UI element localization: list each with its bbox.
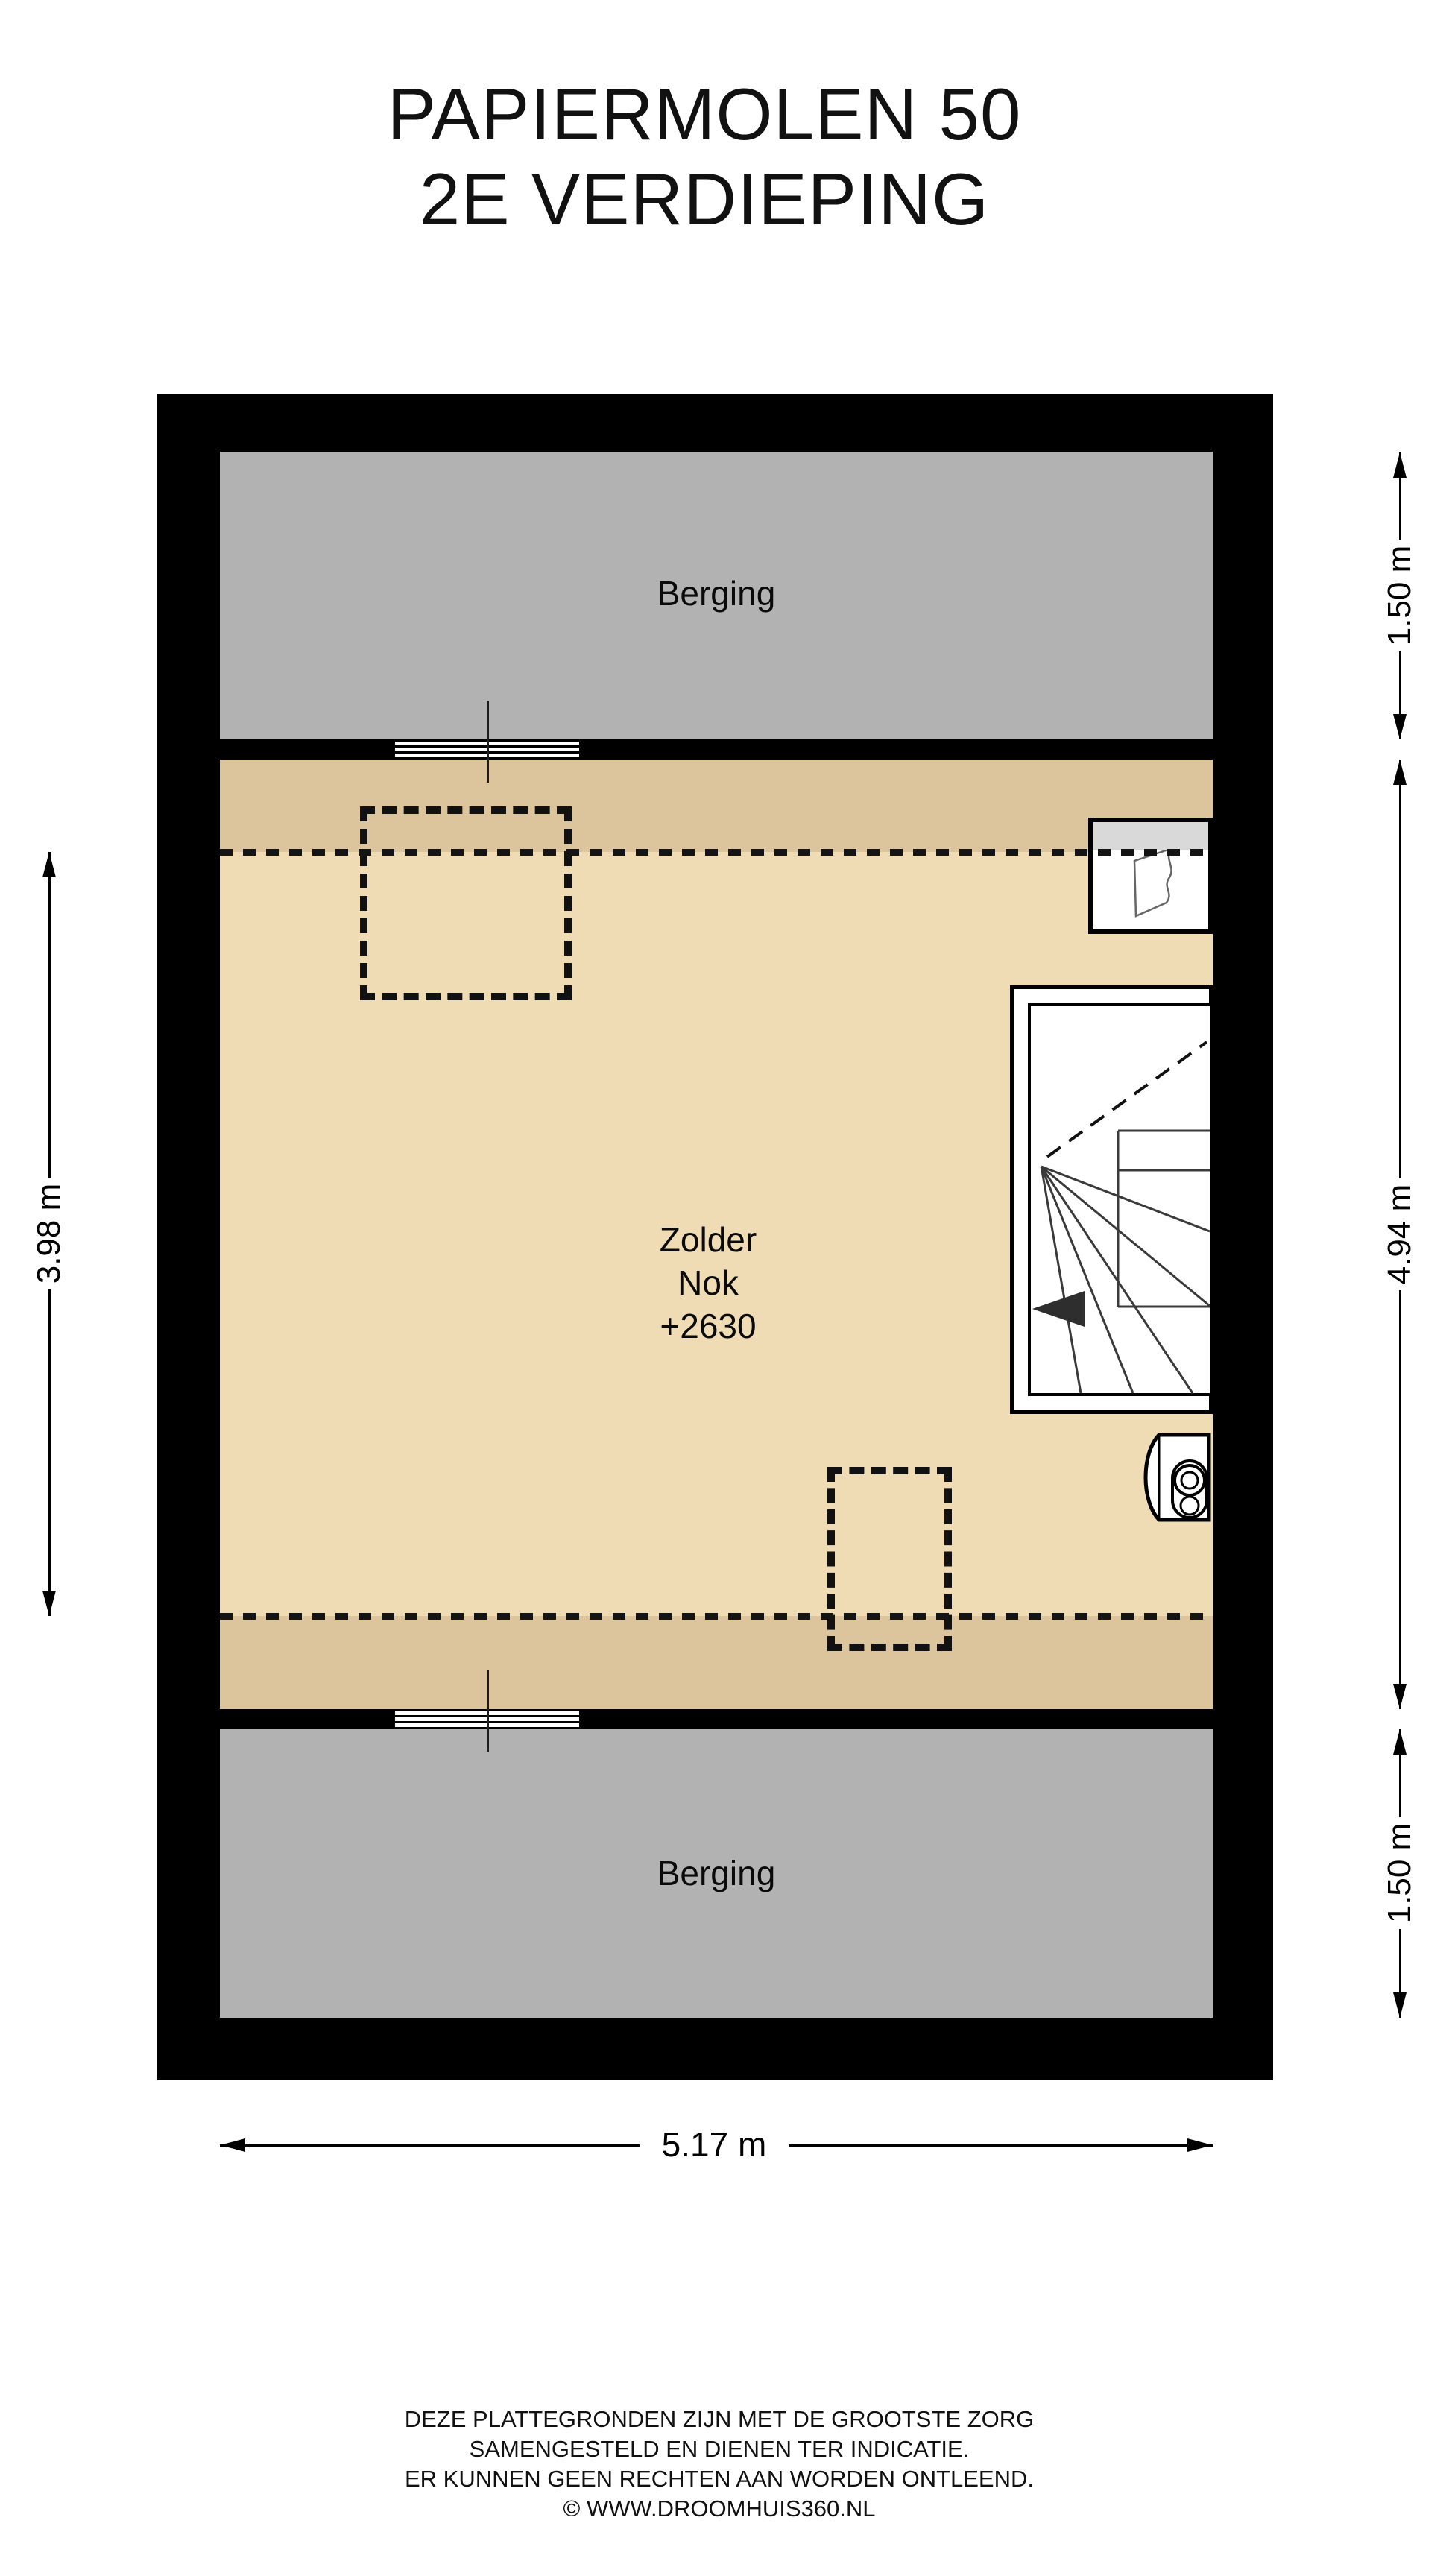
staircase — [1010, 985, 1213, 1414]
arrow-down-icon — [1393, 714, 1407, 739]
dashed-roof-window-1 — [360, 806, 572, 1000]
window-sill — [1093, 822, 1208, 850]
arrow-up-icon — [42, 852, 56, 877]
page-title: PAPIERMOLEN 50 2E VERDIEPING — [0, 72, 1409, 241]
room-label-berging-bottom: Berging — [567, 1853, 865, 1893]
dimension-label-right-middle: 4.94 m — [1383, 1178, 1417, 1290]
door-swing-line-top — [487, 701, 489, 783]
arrow-down-icon — [1393, 1684, 1407, 1709]
dashed-roof-window-2 — [827, 1467, 952, 1651]
arrow-up-icon — [1393, 760, 1407, 785]
arrow-down-icon — [1393, 1992, 1407, 2018]
staircase-drawing — [1010, 985, 1213, 1414]
room-label-berging-top: Berging — [567, 573, 865, 613]
disclaimer-line2: SAMENGESTELD EN DIENEN TER INDICATIE. — [0, 2434, 1439, 2464]
dimension-label-bottom: 5.17 m — [640, 2125, 789, 2164]
door-swing-line-bottom — [487, 1670, 489, 1752]
zolder-nok: Nok — [559, 1261, 857, 1304]
room-label-zolder: Zolder Nok +2630 — [559, 1218, 857, 1348]
footer-disclaimer: DEZE PLATTEGRONDEN ZIJN MET DE GROOTSTE … — [0, 2405, 1439, 2524]
zolder-ridge-height: +2630 — [559, 1304, 857, 1348]
boiler-cv-ketel — [1134, 1433, 1213, 1522]
sloped-roof-band-bottom — [220, 1616, 1213, 1709]
disclaimer-line4: © WWW.DROOMHUIS360.NL — [0, 2494, 1439, 2524]
disclaimer-line3: ER KUNNEN GEEN RECHTEN AAN WORDEN ONTLEE… — [0, 2464, 1439, 2494]
dormer-window — [1088, 818, 1213, 934]
arrow-right-icon — [1187, 2138, 1213, 2152]
arrow-up-icon — [1393, 452, 1407, 478]
dotted-kneewall-line-bottom — [220, 1613, 1213, 1620]
page-title-line2: 2E VERDIEPING — [0, 157, 1409, 241]
floor-plan: Berging Zolder Nok +2630 Berging — [157, 394, 1273, 2080]
boiler-icon — [1134, 1433, 1213, 1522]
arrow-down-icon — [42, 1591, 56, 1616]
zolder-name: Zolder — [559, 1218, 857, 1261]
dimension-label-right-bottom: 1.50 m — [1383, 1817, 1417, 1929]
arrow-left-icon — [220, 2138, 245, 2152]
dimension-label-left: 3.98 m — [32, 1178, 66, 1289]
page-title-line1: PAPIERMOLEN 50 — [0, 72, 1409, 157]
dimension-label-right-top: 1.50 m — [1383, 540, 1417, 651]
dotted-kneewall-line-top — [220, 849, 1213, 856]
disclaimer-line1: DEZE PLATTEGRONDEN ZIJN MET DE GROOTSTE … — [0, 2405, 1439, 2434]
arrow-up-icon — [1393, 1729, 1407, 1755]
